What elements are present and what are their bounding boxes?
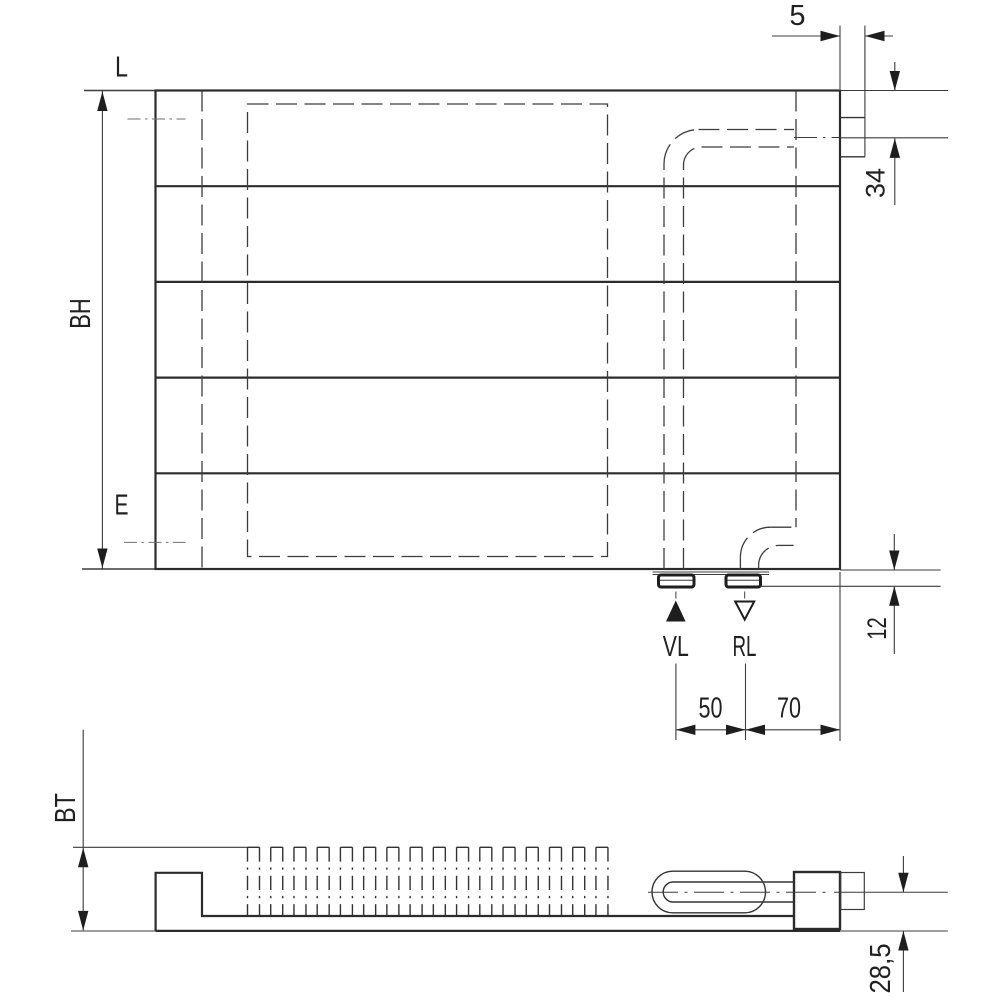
svg-text:VL: VL [663, 631, 689, 663]
svg-text:E: E [115, 490, 129, 522]
svg-text:RL: RL [733, 631, 757, 663]
svg-text:50: 50 [699, 693, 723, 725]
svg-text:70: 70 [777, 693, 801, 725]
svg-text:34: 34 [861, 168, 891, 198]
svg-text:L: L [115, 52, 128, 84]
svg-text:BH: BH [65, 298, 97, 329]
svg-text:28,5: 28,5 [865, 944, 897, 994]
svg-text:5: 5 [789, 0, 805, 32]
svg-text:12: 12 [862, 617, 892, 640]
svg-text:BT: BT [50, 793, 82, 823]
